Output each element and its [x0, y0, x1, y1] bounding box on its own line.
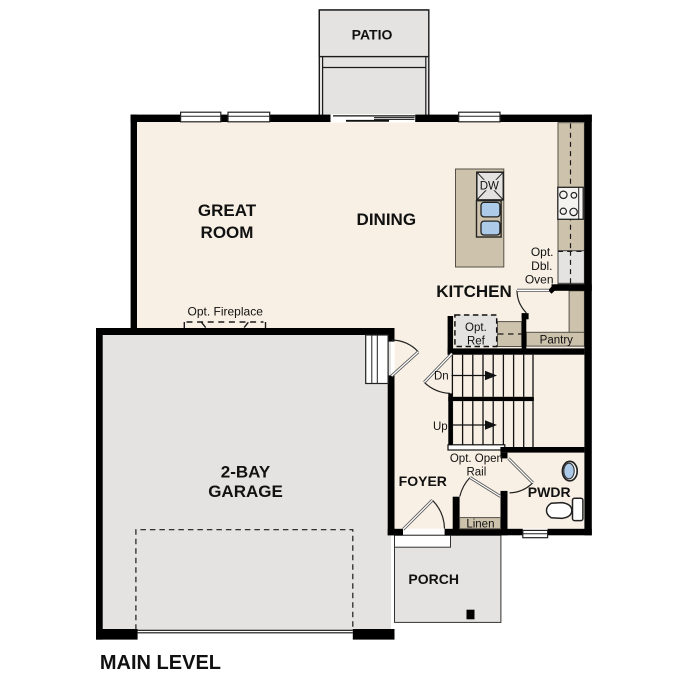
- svg-text:Opt.: Opt.: [465, 322, 487, 334]
- svg-text:Oven: Oven: [525, 273, 554, 287]
- svg-text:Dn: Dn: [434, 371, 449, 383]
- svg-text:MAIN LEVEL: MAIN LEVEL: [100, 652, 221, 674]
- svg-text:GARAGE: GARAGE: [208, 482, 283, 501]
- svg-text:KITCHEN: KITCHEN: [436, 282, 512, 301]
- svg-text:Up: Up: [433, 421, 448, 433]
- svg-text:PWDR: PWDR: [528, 484, 571, 500]
- svg-text:PATIO: PATIO: [352, 27, 393, 43]
- svg-text:GREAT: GREAT: [198, 201, 257, 220]
- svg-text:Dbl.: Dbl.: [531, 259, 552, 273]
- svg-text:PORCH: PORCH: [408, 571, 459, 587]
- svg-text:2-BAY: 2-BAY: [221, 462, 271, 481]
- svg-text:Pantry: Pantry: [540, 335, 573, 347]
- svg-text:Opt.: Opt.: [531, 245, 554, 259]
- svg-text:DINING: DINING: [357, 210, 417, 229]
- svg-text:Opt. Open: Opt. Open: [450, 453, 503, 465]
- svg-text:Rail: Rail: [466, 466, 486, 478]
- svg-text:Ref: Ref: [467, 336, 486, 348]
- svg-text:ROOM: ROOM: [201, 223, 254, 242]
- svg-text:DW: DW: [480, 180, 499, 192]
- svg-text:Linen: Linen: [466, 519, 494, 531]
- svg-text:Opt. Fireplace: Opt. Fireplace: [188, 305, 264, 319]
- svg-text:FOYER: FOYER: [399, 473, 447, 489]
